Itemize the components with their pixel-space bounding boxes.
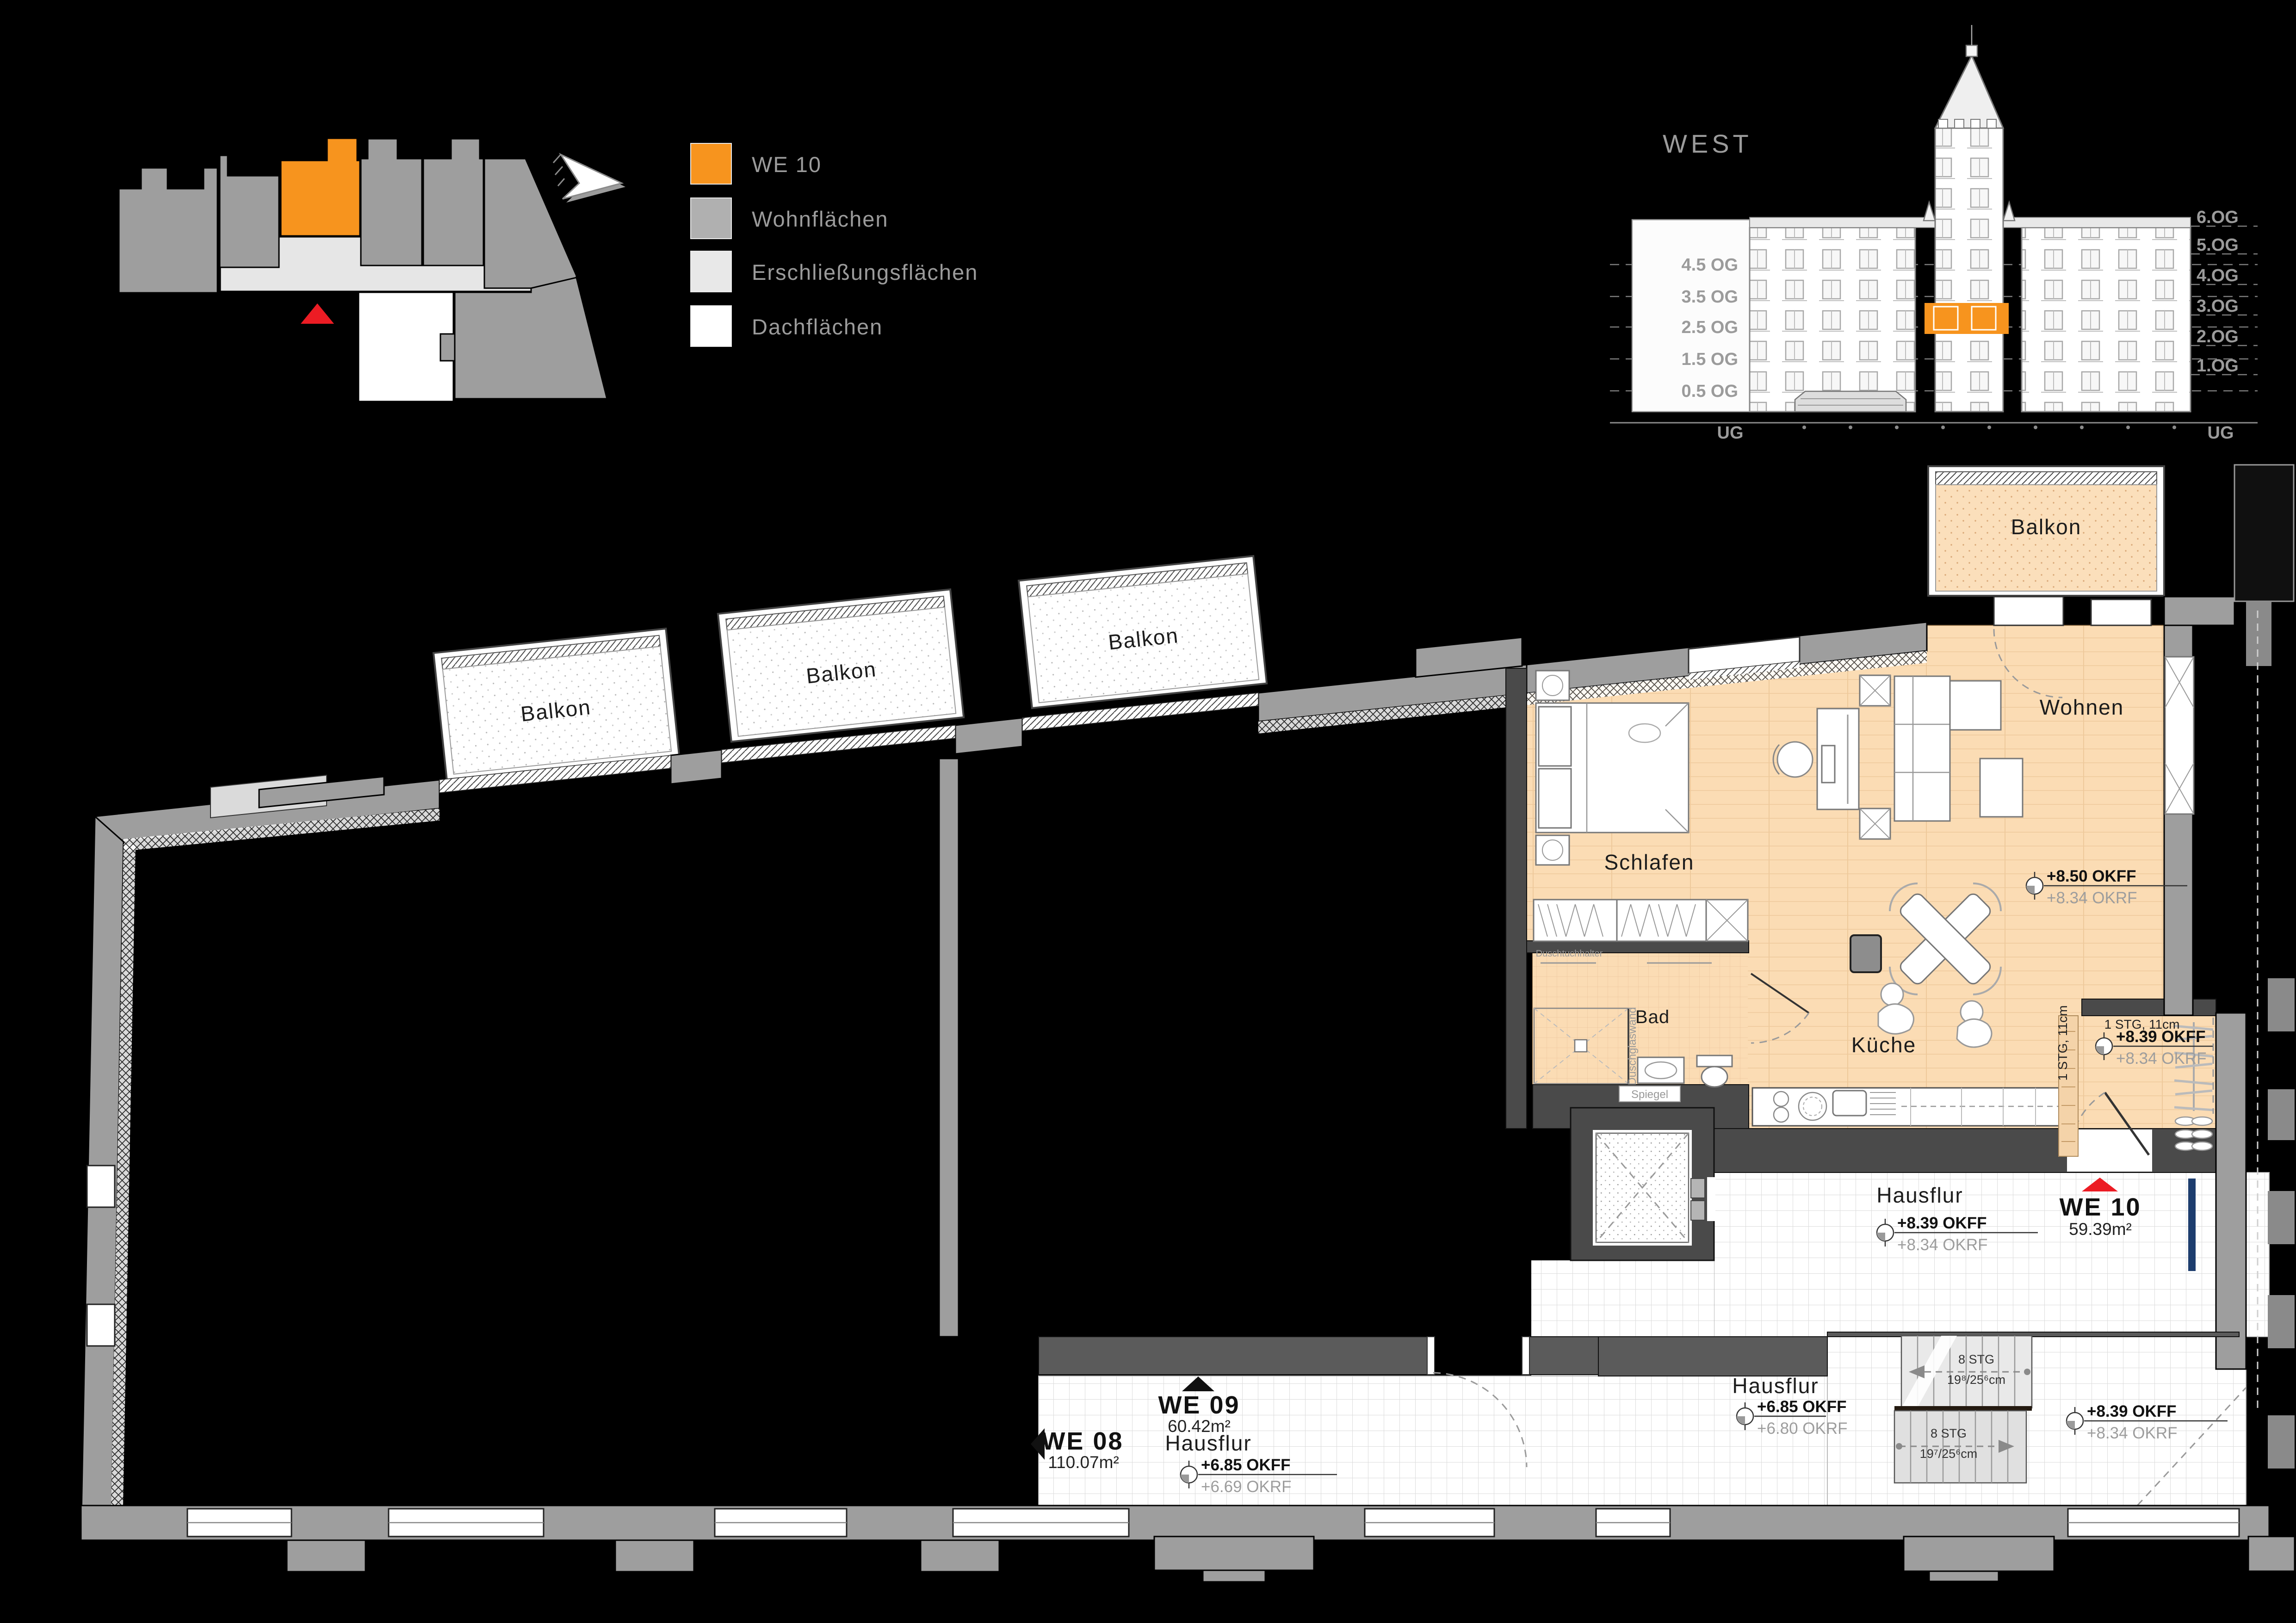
- elevation-left-wing: [1750, 228, 1915, 412]
- level-label: 6.OG: [2197, 208, 2239, 227]
- marker-okrf: +8.34 OKRF: [2047, 889, 2137, 907]
- sofa-chaise: [1950, 681, 2001, 730]
- glazing-panel: [2188, 1179, 2196, 1271]
- level-label: 0.5 OG: [1682, 382, 1739, 401]
- marker-okrf: +8.34 OKRF: [1897, 1236, 1988, 1254]
- legend-swatch-erschliessung: [691, 251, 731, 292]
- marker-okrf: +6.69 OKRF: [1201, 1478, 1292, 1496]
- unit-area: 110.07m²: [1048, 1453, 1119, 1472]
- marker-okff: +6.85 OKFF: [1201, 1456, 1291, 1474]
- legend-label-wohnflaechen: Wohnflächen: [752, 207, 889, 231]
- site-roof-area: [359, 292, 453, 401]
- desk-chair: [1777, 742, 1813, 777]
- coffee-table: [1980, 759, 2023, 817]
- hausflur-lower-floor: [1039, 1376, 1827, 1506]
- right-edge-loggia: [2234, 465, 2294, 601]
- level-label: 1.5 OG: [1682, 350, 1739, 369]
- marker-okrf: +8.34 OKRF: [2087, 1424, 2178, 1442]
- legend-swatch-wohnflaechen: [691, 198, 731, 239]
- legend-swatch-we10: [691, 143, 731, 184]
- stair-label-line1: 8 STG: [1931, 1426, 1967, 1440]
- corridor-label-right: Hausflur: [1876, 1183, 1963, 1207]
- elevation-tower: [1935, 128, 2003, 412]
- we08-we09-divider: [939, 759, 959, 1337]
- wohnen-window: [2091, 599, 2151, 625]
- marker-okrf: +8.34 OKRF: [2116, 1049, 2207, 1068]
- we09-we10-divider: [1506, 668, 1527, 1129]
- balcony-3: Balkon: [1019, 556, 1267, 708]
- balcony-1: Balkon: [433, 629, 679, 779]
- balcony-4-we10: Balkon: [1928, 466, 2164, 596]
- stair-label-line2: 19⁸/25⁶cm: [1947, 1373, 2005, 1387]
- wohnen-entry-wall: [2082, 999, 2216, 1016]
- unit-id: WE 08: [1041, 1427, 1123, 1455]
- we09-south-wall-b: [1529, 1337, 1598, 1375]
- unit-id: WE 10: [2059, 1193, 2141, 1221]
- corridor-label-mid: Hausflur: [1732, 1374, 1819, 1398]
- stair-landing-edge: [1894, 1406, 2032, 1411]
- marker-okff: +8.39 OKFF: [1897, 1214, 1987, 1232]
- marker-okff: +6.85 OKFF: [1757, 1398, 1847, 1416]
- level-label: 4.5 OG: [1682, 255, 1739, 275]
- elevator-door-gap: [1707, 1177, 1715, 1221]
- mid-corridor-wall: [1598, 1337, 1827, 1376]
- sofa: [1894, 676, 1950, 821]
- room-label-wohnen: Wohnen: [2040, 695, 2124, 719]
- label-duschtuchhalter: Duschtuchhalter: [1536, 949, 1603, 959]
- stair-flight-upper: 8 STG 19⁸/25⁶cm: [1901, 1336, 2032, 1408]
- unit-area: 60.42m²: [1168, 1417, 1231, 1436]
- step-label-v: 1 STG, 11cm: [2055, 1006, 2070, 1081]
- entry-east-wall: [2216, 1013, 2246, 1369]
- stair-label-line1: 8 STG: [1958, 1352, 1994, 1366]
- marker-okff: +8.39 OKFF: [2087, 1402, 2177, 1420]
- balcony-door-opening: [1994, 597, 2063, 625]
- level-label: 2.5 OG: [1682, 318, 1739, 337]
- stair-label-line2: 19⁷/25⁶cm: [1920, 1447, 1977, 1461]
- unit-id: WE 09: [1158, 1391, 1240, 1419]
- legend-label-dachflaechen: Dachflächen: [752, 315, 883, 339]
- room-label-bad: Bad: [1635, 1007, 1670, 1027]
- kitchen-counter: [1752, 1088, 2064, 1126]
- keyboard: [1822, 746, 1835, 783]
- level-label: 2.OG: [2197, 327, 2239, 346]
- spire-cap: [1966, 45, 1977, 56]
- level-label: 1.OG: [2197, 356, 2239, 376]
- level-label: 4.OG: [2197, 266, 2239, 285]
- marker-okff: +8.50 OKFF: [2047, 867, 2136, 885]
- marker-okrf: +6.80 OKRF: [1757, 1419, 1848, 1438]
- elevation-title: WEST: [1663, 129, 1752, 158]
- label-spiegel: Spiegel: [1631, 1088, 1668, 1101]
- elevation-entrance-steps: [1795, 391, 1906, 412]
- level-label: 3.5 OG: [1682, 287, 1739, 307]
- wardrobe: [1534, 900, 1748, 941]
- hausflur-right-floor: [1714, 1173, 2269, 1337]
- wohnen-closet: [2165, 657, 2194, 814]
- shoes: [2175, 1117, 2212, 1150]
- level-label: 3.OG: [2197, 296, 2239, 316]
- level-label: 5.OG: [2197, 235, 2239, 255]
- legend-label-erschliessung: Erschließungsflächen: [752, 260, 978, 284]
- legend-swatch-dachflaechen: [691, 306, 731, 346]
- left-wall-window: [87, 1304, 115, 1346]
- we10-entry-opening: [2067, 1129, 2152, 1172]
- left-wall-window: [87, 1166, 115, 1207]
- elevation-right-wing: [2022, 228, 2191, 412]
- we09-south-wall-a: [1039, 1337, 1427, 1375]
- floorplan-sheet: WE 10 Wohnflächen Erschließungsflächen D…: [0, 0, 2296, 1623]
- level-label-ug-left: UG: [1717, 423, 1744, 443]
- legend-label-we10: WE 10: [752, 152, 822, 177]
- room-label-kueche: Küche: [1851, 1033, 1916, 1057]
- site-block-f-tab: [440, 334, 455, 361]
- room-label-schlafen: Schlafen: [1604, 850, 1694, 874]
- balcony-2: Balkon: [718, 589, 964, 741]
- elevator: [1571, 1108, 1715, 1260]
- unit-area: 59.39m²: [2069, 1220, 2132, 1239]
- kitchen-island-block: [1850, 935, 1881, 972]
- stair-flight-lower: 8 STG 19⁷/25⁶cm: [1894, 1411, 2026, 1483]
- balcony-label: Balkon: [2011, 515, 2082, 539]
- label-duschglaswand: Duschglaswand: [1626, 1007, 1639, 1085]
- marker-okff: +8.39 OKFF: [2116, 1028, 2206, 1046]
- shower-drain: [1575, 1040, 1587, 1052]
- level-label-ug-right: UG: [2208, 423, 2234, 443]
- stairwell-top-edge: [1827, 1332, 2239, 1337]
- stairwell-floor: [1827, 1332, 2246, 1506]
